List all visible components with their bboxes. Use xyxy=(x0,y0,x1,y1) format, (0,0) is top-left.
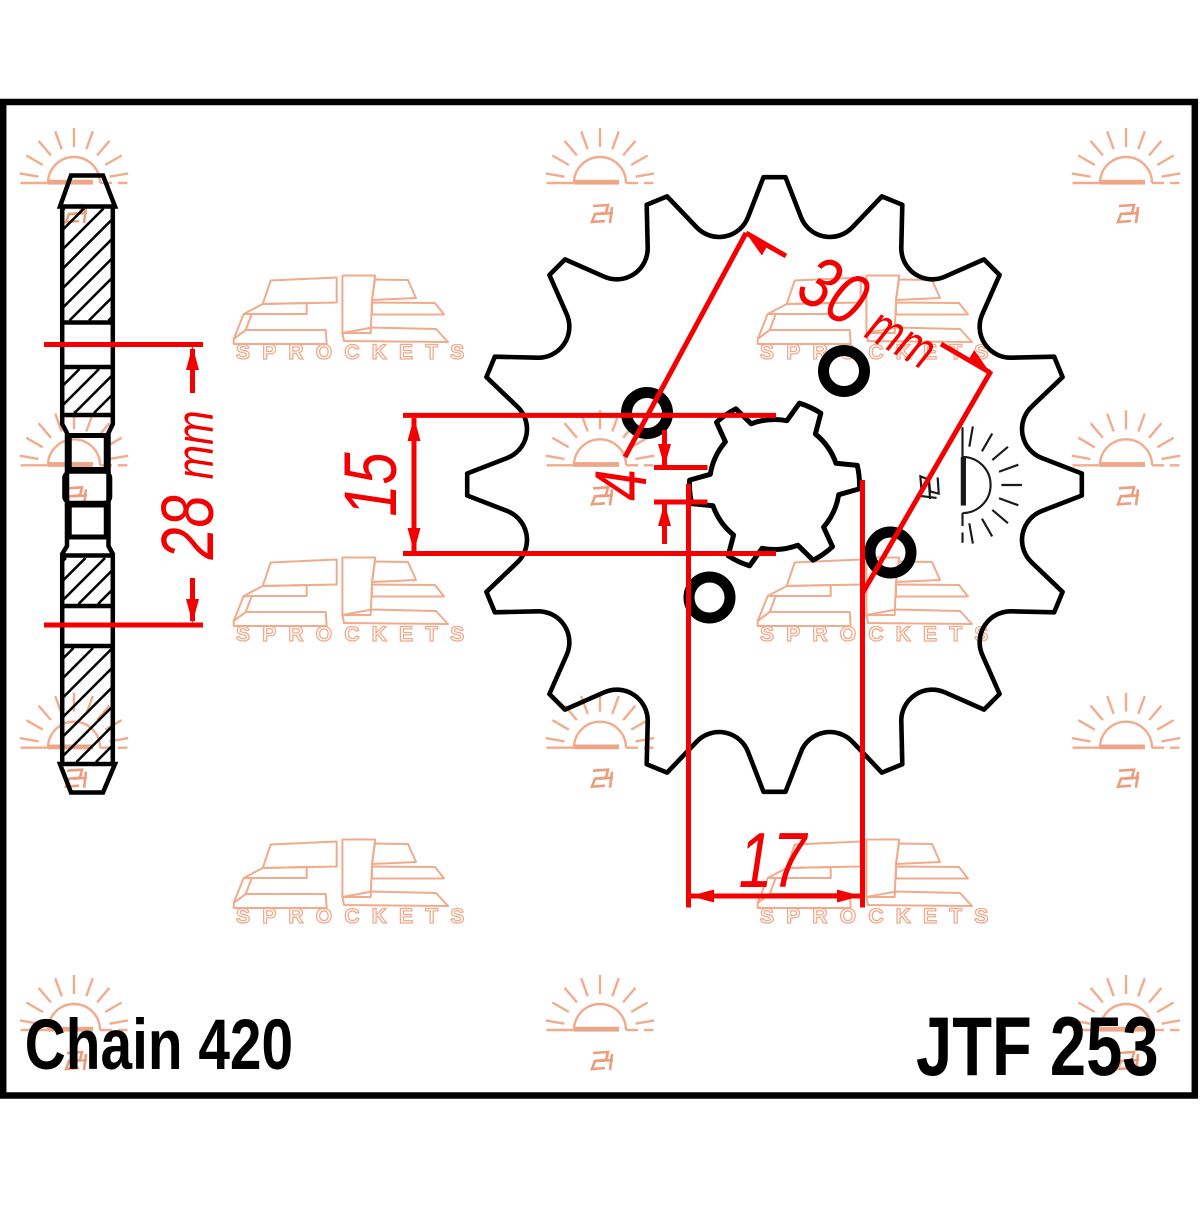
svg-text:JTF 253: JTF 253 xyxy=(916,999,1159,1093)
svg-text:4: 4 xyxy=(580,469,661,501)
svg-text:17: 17 xyxy=(739,817,809,904)
svg-text:15: 15 xyxy=(330,451,413,516)
svg-text:Chain 420: Chain 420 xyxy=(25,1005,293,1085)
